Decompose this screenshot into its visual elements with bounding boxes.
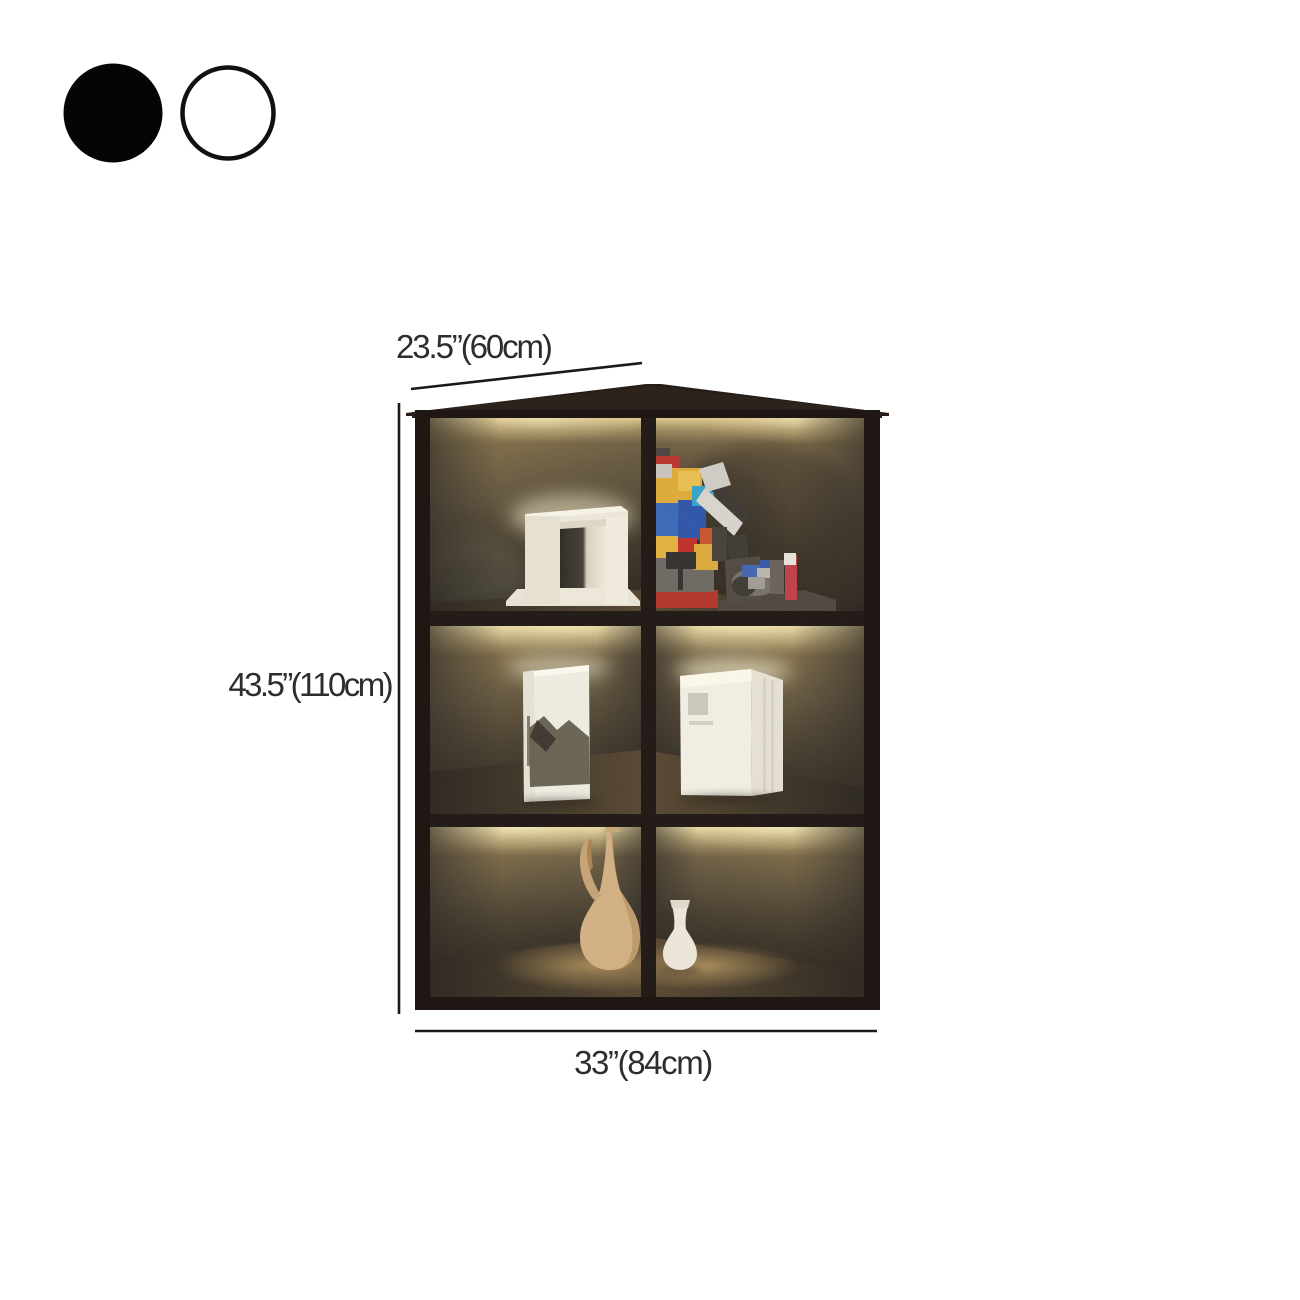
svg-text:43.5”(110cm): 43.5”(110cm) <box>228 666 391 703</box>
svg-text:23.5”(60cm): 23.5”(60cm) <box>396 328 551 365</box>
svg-text:33”(84cm): 33”(84cm) <box>574 1044 712 1081</box>
